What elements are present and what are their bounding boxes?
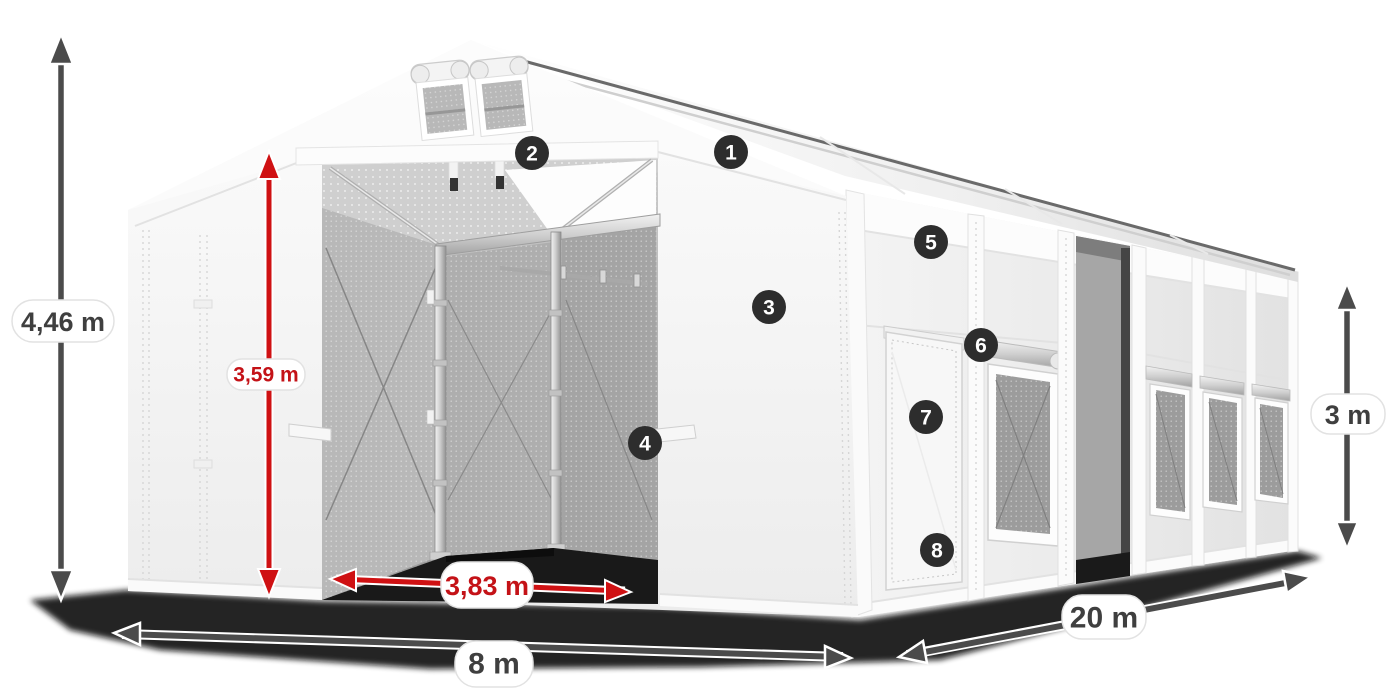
dimension-label-total-height: 4,46 m [21, 307, 105, 337]
svg-text:4: 4 [639, 433, 651, 456]
svg-text:6: 6 [975, 335, 987, 358]
side-window-2 [1146, 366, 1192, 520]
marker-1[interactable]: 1 [714, 135, 748, 169]
tent-illustration: 4,46 m 3,59 m 3,83 m 8 m [0, 0, 1400, 700]
marker-5[interactable]: 5 [914, 225, 948, 259]
svg-text:2: 2 [526, 143, 538, 166]
entrance-interior [289, 141, 696, 604]
dimension-wall-height: 3 m [1311, 283, 1385, 549]
svg-text:1: 1 [725, 142, 737, 165]
marker-7[interactable]: 7 [909, 400, 943, 434]
svg-text:3: 3 [763, 297, 775, 320]
dimension-label-wall-height: 3 m [1325, 400, 1372, 430]
marker-3[interactable]: 3 [752, 290, 786, 324]
side-window-4 [1252, 384, 1290, 504]
dimension-total-height: 4,46 m [12, 34, 114, 600]
dimension-label-width: 8 m [468, 648, 520, 681]
svg-text:7: 7 [920, 407, 932, 430]
middle-passage [1076, 236, 1130, 584]
marker-8[interactable]: 8 [920, 533, 954, 567]
marker-2[interactable]: 2 [515, 136, 549, 170]
dimension-label-entrance-height: 3,59 m [233, 364, 298, 387]
marker-4[interactable]: 4 [628, 426, 662, 460]
tent-dimension-diagram: 4,46 m 3,59 m 3,83 m 8 m [0, 0, 1400, 700]
dimension-label-length: 20 m [1070, 602, 1138, 635]
svg-text:5: 5 [925, 232, 937, 255]
dimension-label-entrance-width: 3,83 m [445, 571, 529, 601]
svg-text:8: 8 [931, 540, 943, 563]
marker-6[interactable]: 6 [964, 328, 998, 362]
